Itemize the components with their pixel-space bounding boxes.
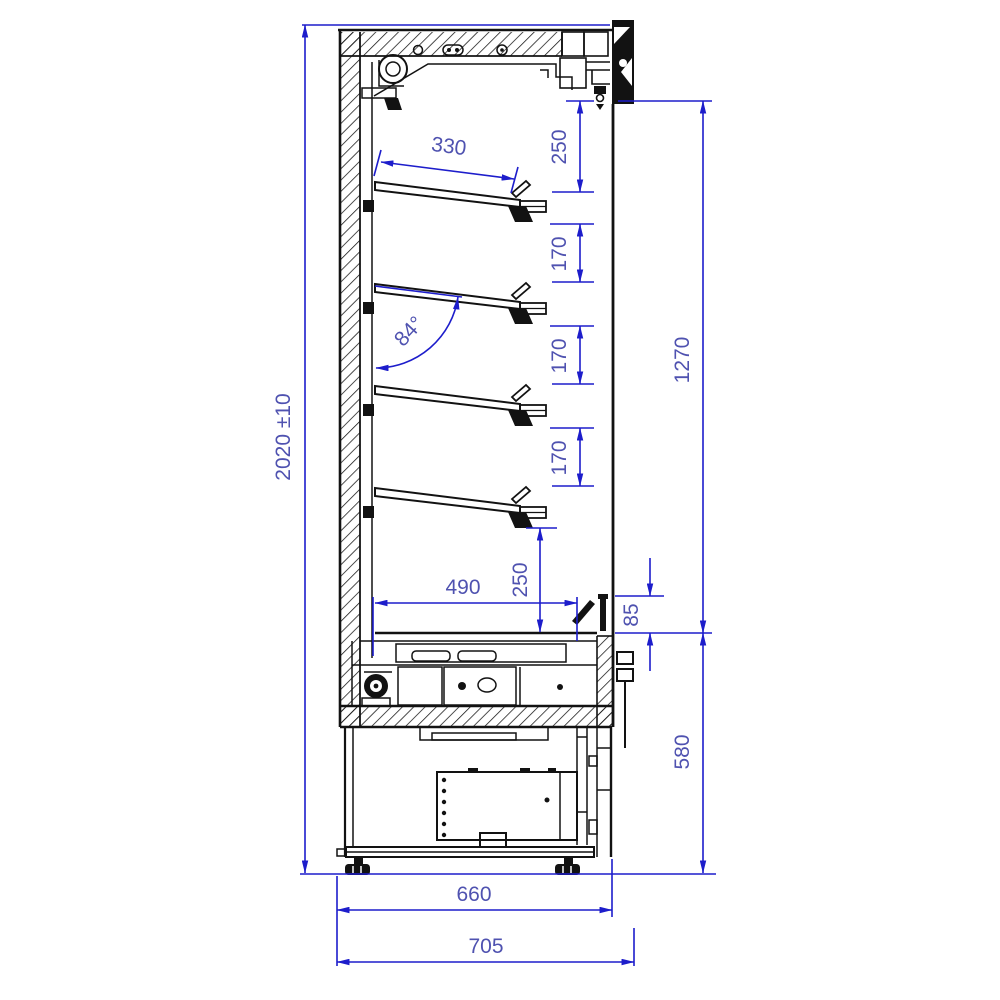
dim-label-shelf-depth: 330: [430, 133, 468, 160]
dim-label-opening-height: 1270: [671, 337, 694, 384]
dim-label-bottom-gap: 250: [509, 562, 532, 597]
dim-label-overall-depth: 705: [468, 935, 503, 958]
dim-label-shelf-gap-a: 170: [548, 236, 571, 271]
dimensions: 2020 ±10 330 250 170 170: [272, 25, 716, 966]
cabinet-structure: [337, 20, 634, 875]
dim-label-shelf-gap-c: 170: [548, 440, 571, 475]
dim-top-gap: 250: [548, 101, 594, 192]
dim-shelf-gap-c: 170: [548, 428, 594, 486]
machine-base: [337, 727, 611, 857]
dim-label-grille-offset: 85: [620, 603, 643, 626]
dim-overall-height: 2020 ±10: [272, 25, 716, 874]
bottom-insulated-panel: [340, 706, 612, 727]
dim-label-base-height: 580: [671, 734, 694, 769]
shelves: [363, 181, 546, 528]
dim-label-shelf-gap-b: 170: [548, 338, 571, 373]
dim-overall-depth: 705: [337, 928, 634, 966]
drawing-page: 2020 ±10 330 250 170 170: [0, 0, 1000, 1000]
back-wall: [340, 30, 372, 727]
top-panel: [338, 30, 612, 56]
dim-grille-offset: 85: [615, 558, 712, 671]
front-fascia: [612, 20, 634, 104]
dim-opening-height: 1270: [618, 101, 712, 633]
dim-shelf-angle: 84°: [375, 286, 462, 368]
dim-label-overall-height: 2020 ±10: [272, 393, 295, 480]
deck-and-evaporator: [352, 633, 597, 706]
dim-bottom-gap: 250: [509, 528, 557, 632]
feet: [345, 857, 580, 875]
technical-drawing-canvas: 2020 ±10 330 250 170 170: [0, 0, 1000, 1000]
dim-label-shelf-angle: 84°: [390, 312, 428, 351]
dim-label-top-gap: 250: [548, 129, 571, 164]
canopy-assembly: [560, 20, 634, 110]
dim-label-base-depth: 660: [456, 883, 491, 906]
dim-shelf-gap-a: 170: [548, 224, 594, 282]
dim-label-well-depth: 490: [445, 576, 480, 599]
dim-shelf-gap-b: 170: [548, 326, 594, 384]
dim-base-height: 580: [671, 633, 703, 873]
condensing-unit: [437, 768, 577, 840]
